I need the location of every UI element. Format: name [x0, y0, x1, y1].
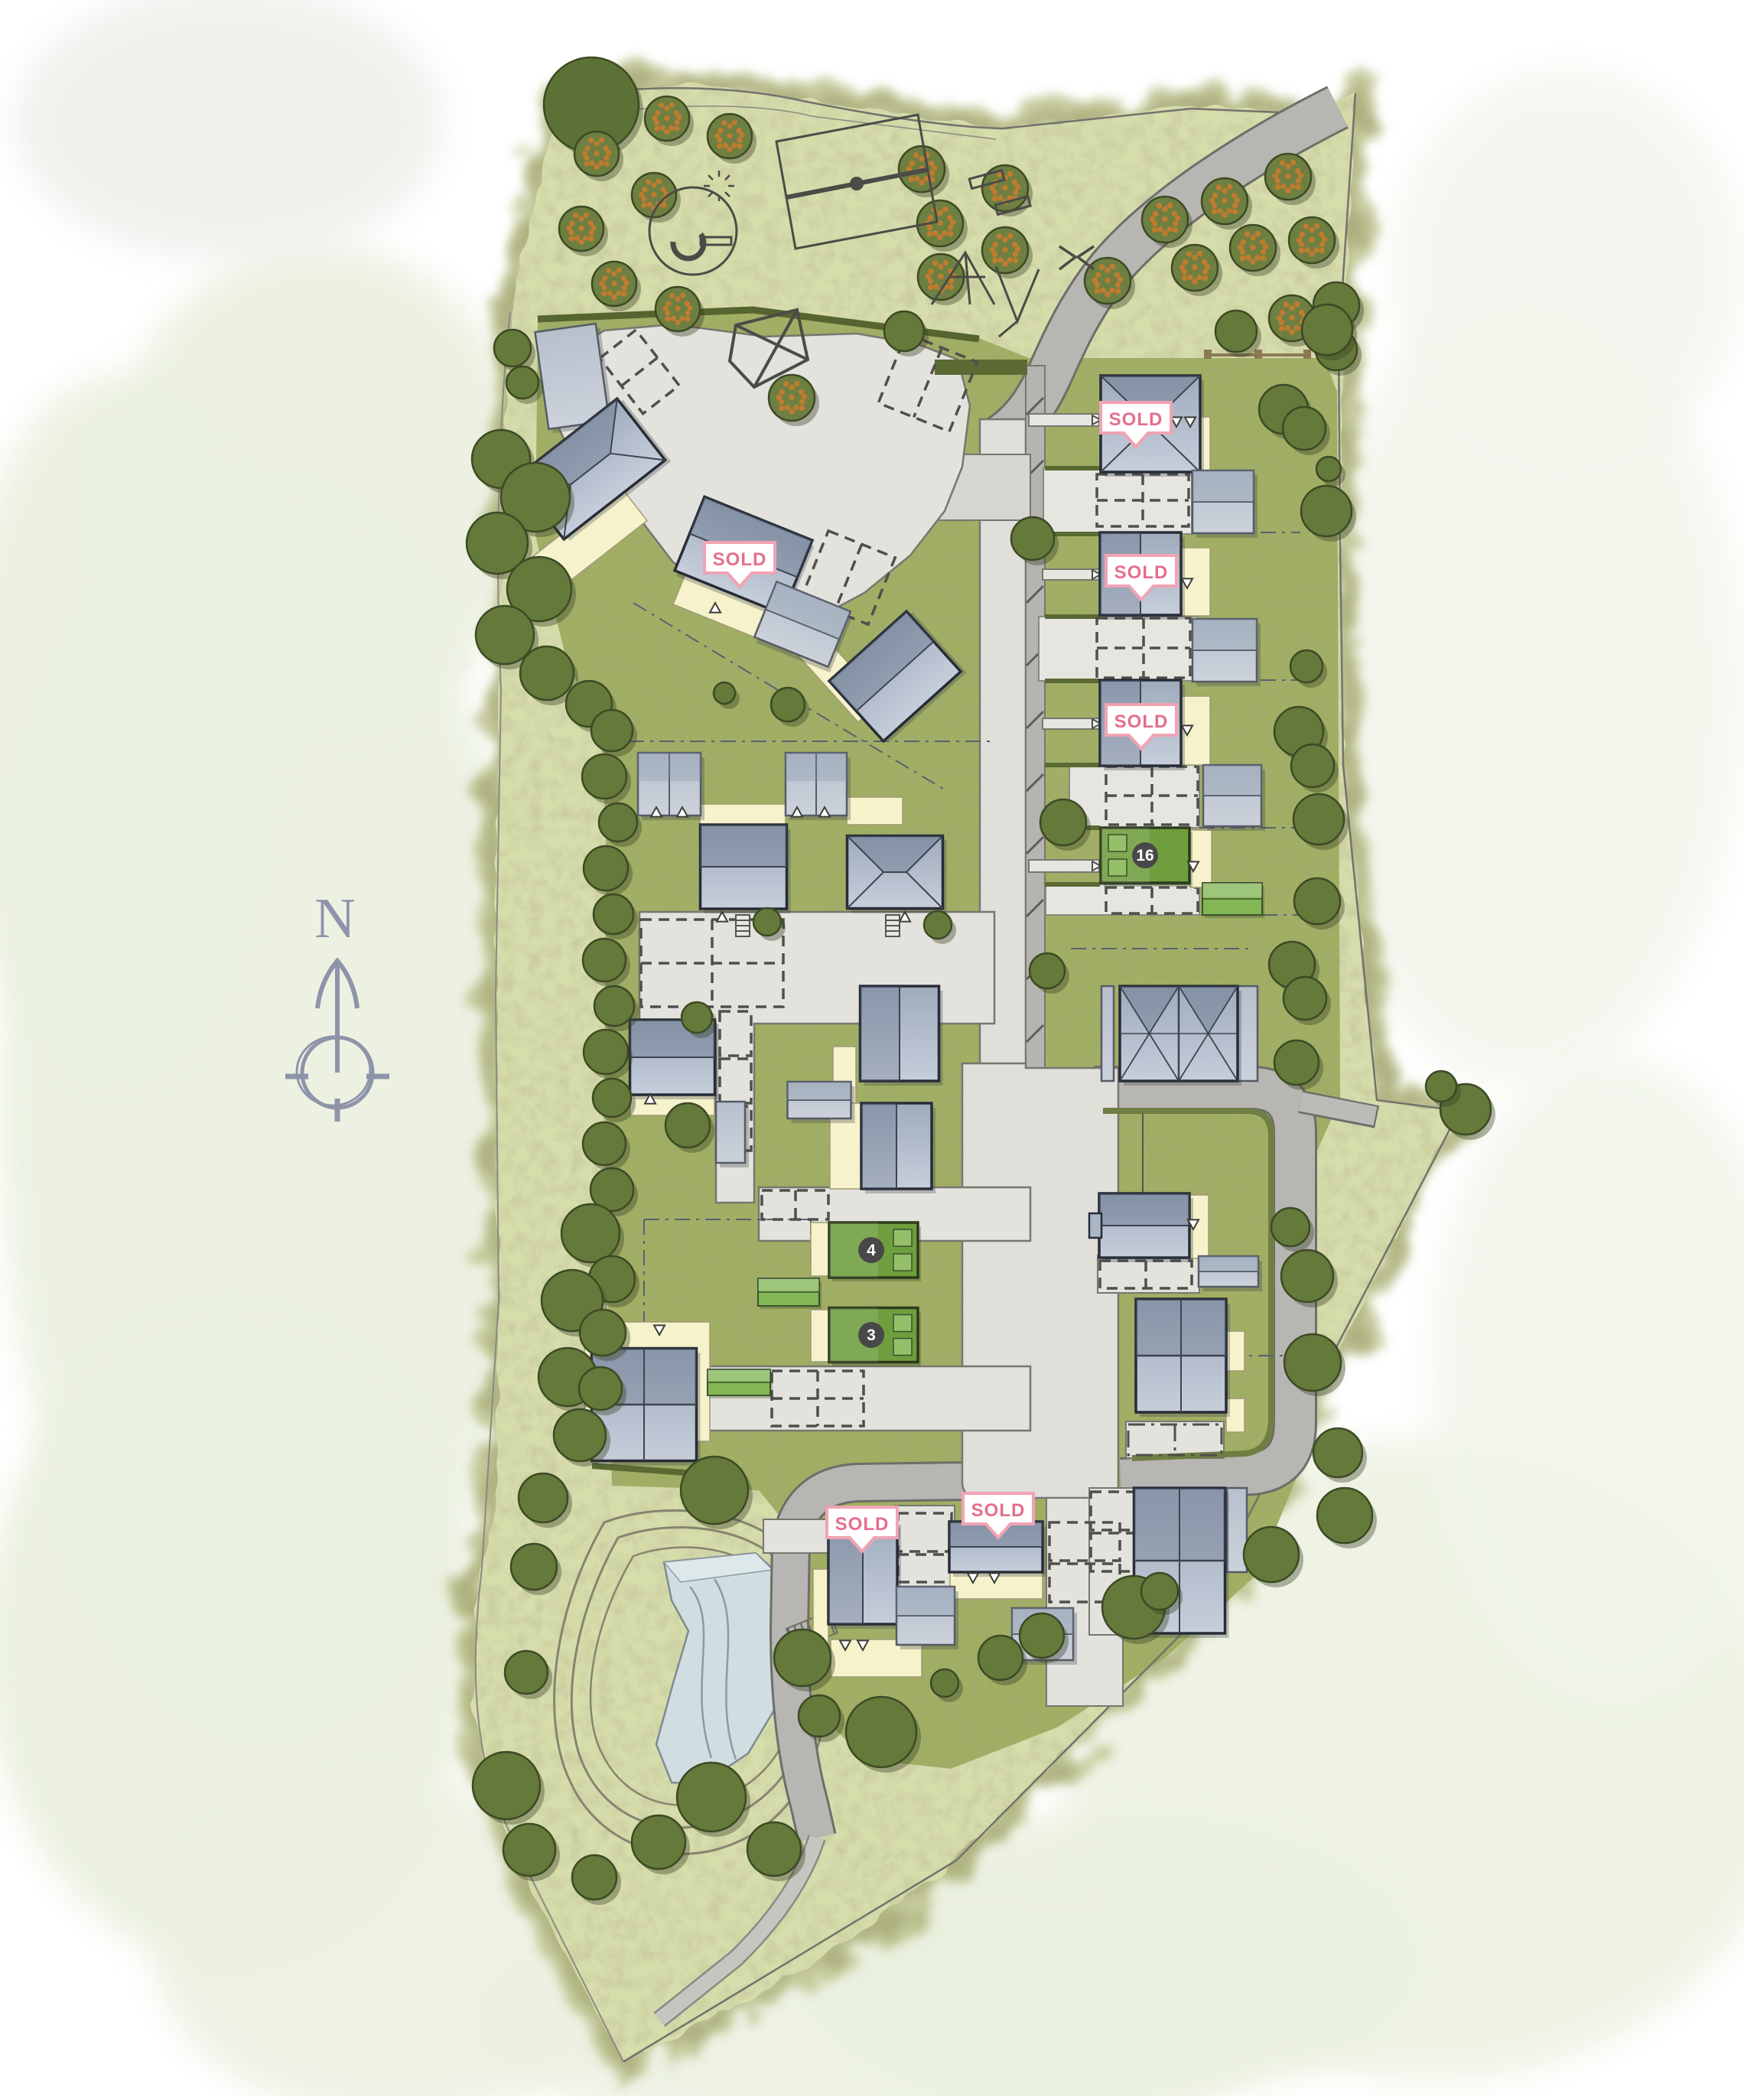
- svg-text:SOLD: SOLD: [835, 1514, 890, 1535]
- svg-text:3: 3: [867, 1327, 876, 1344]
- svg-text:SOLD: SOLD: [1114, 562, 1169, 583]
- svg-text:N: N: [314, 887, 355, 950]
- svg-text:16: 16: [1136, 847, 1153, 864]
- svg-text:SOLD: SOLD: [971, 1500, 1026, 1521]
- svg-text:SOLD: SOLD: [1109, 409, 1163, 430]
- svg-text:SOLD: SOLD: [713, 549, 767, 570]
- svg-text:SOLD: SOLD: [1114, 711, 1169, 732]
- svg-text:4: 4: [867, 1242, 876, 1259]
